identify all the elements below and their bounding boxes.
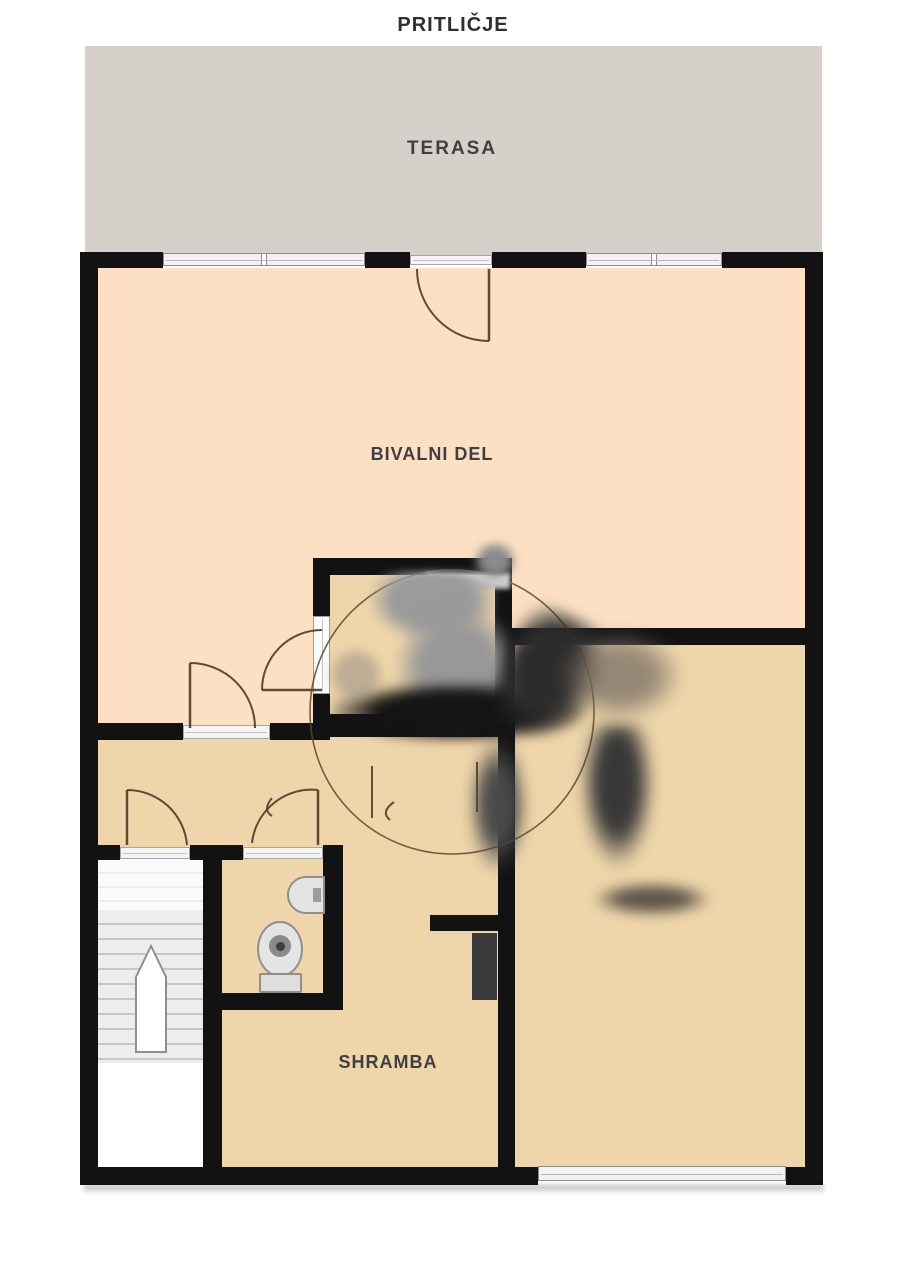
room-label-bivalni-del: BIVALNI DEL <box>332 444 532 465</box>
bath-door-sill <box>243 847 323 859</box>
stairs-bath-divider <box>203 845 222 1167</box>
wall-bottom-exterior <box>786 1167 823 1185</box>
stair-treads-upper <box>97 860 203 910</box>
right-room-floor <box>512 645 805 1167</box>
living-room-floor-left <box>97 628 313 738</box>
wall-left-exterior <box>80 252 98 1185</box>
stair-treads <box>97 910 203 1063</box>
wall-stub <box>430 915 500 931</box>
inner-room-wall-bottom <box>313 714 512 737</box>
window <box>163 253 365 266</box>
room-label-terasa: TERASA <box>352 138 552 160</box>
sink-icon <box>287 876 325 914</box>
wall-right-exterior <box>805 252 823 1185</box>
plan-shadow <box>84 1185 824 1194</box>
room-label-shramba: SHRAMBA <box>288 1052 488 1073</box>
stairs-wall <box>80 845 120 860</box>
hall-door-sill <box>183 725 270 739</box>
bathroom-wall-bottom <box>222 993 343 1010</box>
window-mullion <box>651 253 657 266</box>
inner-room-wall-left <box>313 575 330 620</box>
terrace-door-sill <box>410 255 492 265</box>
hall-wall <box>80 723 183 740</box>
inner-room-floor <box>330 575 495 714</box>
window-mullion <box>261 253 267 266</box>
sink-drain <box>313 888 321 902</box>
shaft-block <box>472 933 497 1000</box>
toilet-tank <box>259 973 302 993</box>
floor-plan-canvas: PRITLIČJE <box>0 0 906 1280</box>
inner-room-door-sill <box>313 616 330 694</box>
inner-room-wall-right <box>495 575 512 737</box>
wall-segment <box>492 252 586 268</box>
wall-segment <box>365 252 410 268</box>
page-title: PRITLIČJE <box>0 14 906 37</box>
hall-wall <box>270 723 330 740</box>
stairs-door-sill <box>120 847 190 859</box>
window <box>538 1166 786 1181</box>
bathroom-wall-right <box>323 845 343 1010</box>
window <box>586 253 722 266</box>
inner-room-wall-top <box>313 558 512 575</box>
wall-bottom-exterior <box>80 1167 538 1185</box>
staircase <box>97 858 203 1167</box>
toilet-bowl-center <box>276 942 285 951</box>
wall-divider-horizontal <box>512 628 805 645</box>
